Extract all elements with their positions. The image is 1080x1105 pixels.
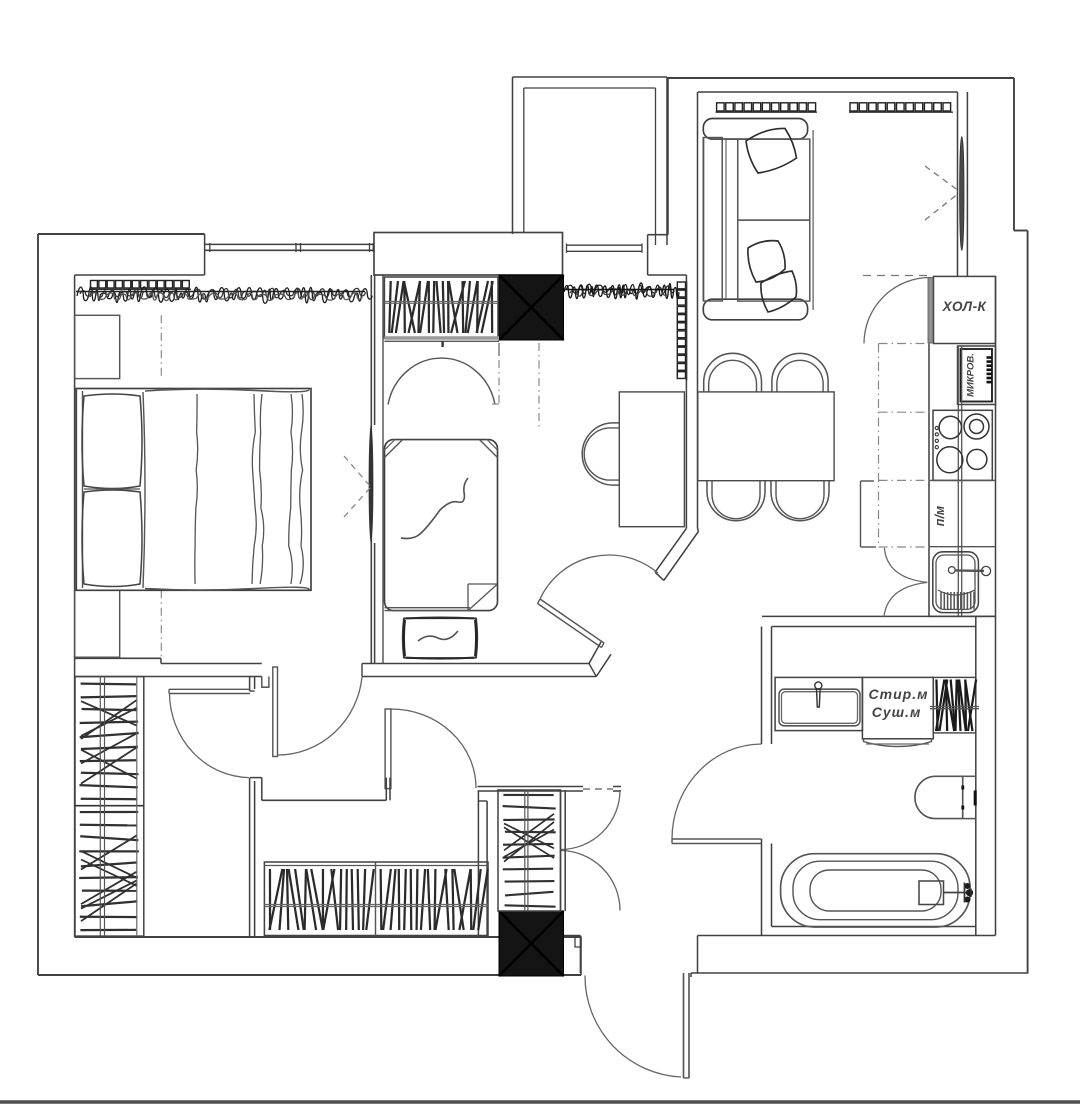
svg-text:Суш.м: Суш.м — [872, 704, 922, 720]
svg-text:ХОЛ-К: ХОЛ-К — [942, 299, 988, 314]
svg-text:п/м: п/м — [933, 506, 947, 526]
svg-text:МИКРОВ.: МИКРОВ. — [966, 353, 977, 397]
svg-text:Стир.м: Стир.м — [869, 686, 929, 702]
